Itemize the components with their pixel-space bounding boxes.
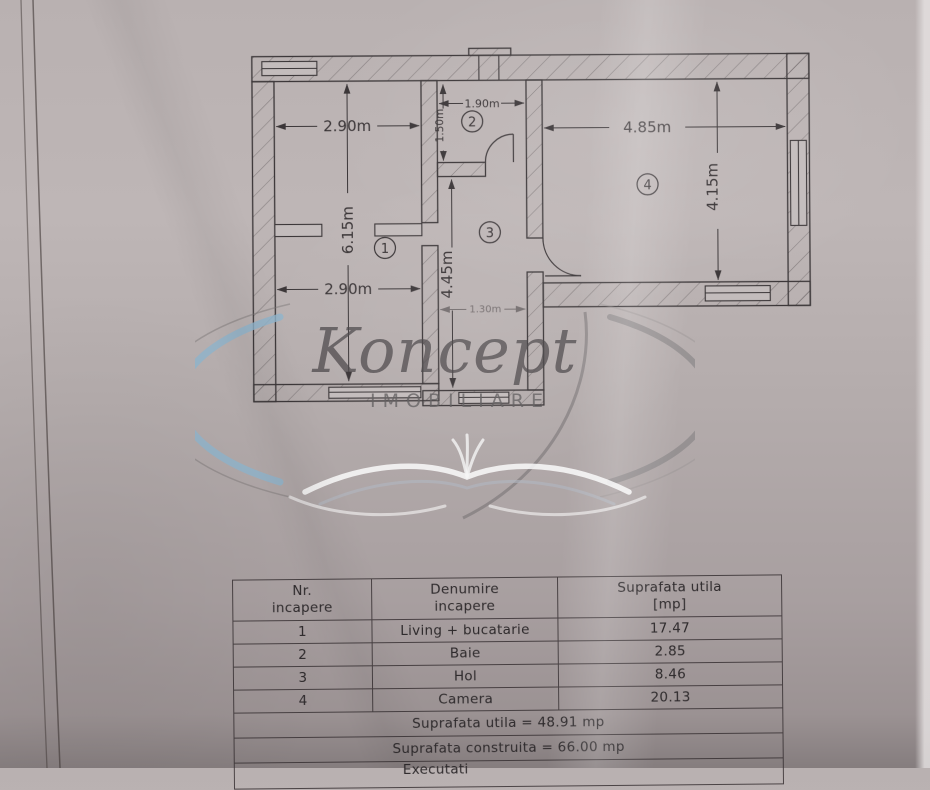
header-nr-line1: Nr. <box>292 583 312 599</box>
window-top-wall <box>262 61 317 75</box>
chimney <box>469 48 511 55</box>
window-room4-bottom <box>705 286 770 301</box>
row4-nr: 4 <box>234 689 373 712</box>
label-room4-width: 4.85m <box>623 118 671 136</box>
header-denumire-line2: incapere <box>434 598 495 615</box>
wall-room1-right-upper <box>421 81 438 223</box>
floor-plan-drawing: 2.90m 6.15m 2.90m 1.90m 1.50m 4.45m 1.30… <box>247 40 825 469</box>
row2-name: Baie <box>373 642 559 666</box>
row1-area: 17.47 <box>558 616 781 640</box>
bath-door-arc <box>485 134 513 162</box>
room-areas-table: Nr. incapere Denumire incapere Suprafata… <box>232 574 784 789</box>
entrance-detail <box>459 392 509 403</box>
wall-bath-bottom <box>437 162 485 176</box>
header-denumire-line1: Denumire <box>430 581 499 598</box>
row3-area: 8.46 <box>559 662 782 686</box>
walls <box>252 46 811 406</box>
row4-area: 20.13 <box>559 685 782 709</box>
label-room2-width: 1.90m <box>464 97 499 110</box>
row4-name: Camera <box>373 688 559 712</box>
room3-number: 3 <box>486 226 494 241</box>
wall-room1-right-lower <box>422 246 439 384</box>
row1-name: Living + bucatarie <box>372 619 558 643</box>
label-hall-width-bottom: 1.30m <box>469 304 501 315</box>
header-suprafata: Suprafata utila [mp] <box>558 575 781 617</box>
room2-number: 2 <box>468 115 476 130</box>
wall-middle-upper <box>526 80 543 238</box>
row3-nr: 3 <box>234 666 373 689</box>
row2-nr: 2 <box>234 643 373 666</box>
header-suprafata-line1: Suprafata utila <box>617 579 722 596</box>
fold-line-1 <box>21 0 47 768</box>
row2-area: 2.85 <box>559 639 782 663</box>
label-room1-height: 6.15m <box>339 206 357 254</box>
header-denumire: Denumire incapere <box>372 578 558 620</box>
photographed-floor-plan-page: { "colors": { "ink": "#3b3638", "paper":… <box>0 0 930 768</box>
wall-top <box>252 53 809 81</box>
window-room1-bottom <box>329 387 421 399</box>
wall-left <box>252 82 276 402</box>
label-room4-height: 4.15m <box>703 163 721 211</box>
header-nr-line2: incapere <box>272 600 333 617</box>
fold-line-2 <box>33 0 60 768</box>
header-nr-incapere: Nr. incapere <box>233 579 372 620</box>
label-room2-height: 1.50m <box>434 109 446 143</box>
label-room1-width-bottom: 2.90m <box>324 280 372 298</box>
room4-door-arc <box>543 238 581 276</box>
row1-nr: 1 <box>233 620 372 643</box>
header-suprafata-line2: [mp] <box>653 596 687 612</box>
wall-middle-lower <box>527 272 544 390</box>
room1-number: 1 <box>381 242 389 257</box>
window-right-wall <box>790 140 807 225</box>
room4-number: 4 <box>643 178 651 193</box>
label-hall-height: 4.45m <box>438 250 456 298</box>
footer-executati-partial: Executati <box>235 758 783 788</box>
table-header-row: Nr. incapere Denumire incapere Suprafata… <box>233 575 781 621</box>
row3-name: Hol <box>373 665 559 689</box>
label-room1-width-top: 2.90m <box>323 117 371 135</box>
